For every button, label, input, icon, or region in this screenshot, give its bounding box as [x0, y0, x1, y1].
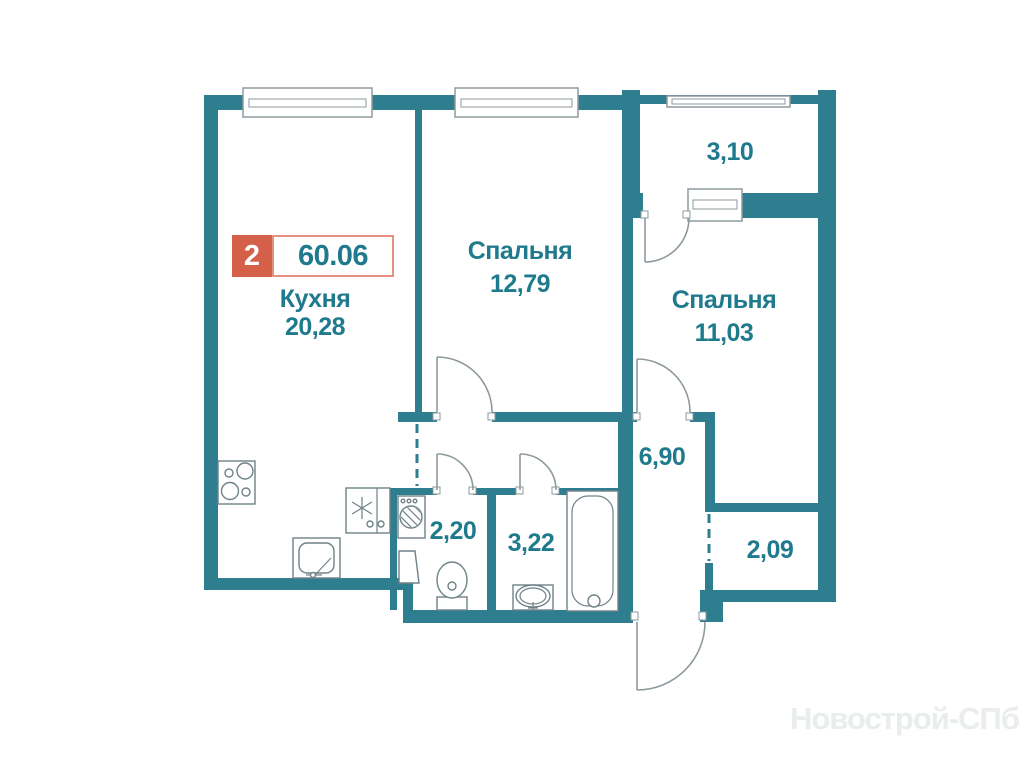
hallway-area-label: 6,90 [572, 445, 752, 470]
kitchen-label: Кухня [225, 287, 405, 312]
balcony-railing-icon [667, 96, 790, 107]
wall-closet-bottom [700, 590, 836, 602]
wall-kitchen-bottom [204, 578, 413, 590]
rooms-count-badge: 2 [232, 235, 272, 277]
kitchen-sink-icon [293, 538, 340, 578]
watermark: Новострой-СПб [790, 701, 1015, 737]
bedroom2-door-icon [633, 359, 693, 420]
floor-plan-page: 2 60.06 Кухня 20,28 Спальня 12,79 Спальн… [0, 0, 1024, 768]
wall-kitchen-bedroom1 [415, 95, 422, 412]
wall-bedroom1-bottom [492, 412, 637, 422]
area-badge: 2 60.06 [232, 235, 394, 277]
wall-right [818, 90, 836, 602]
wall-closet-left-lower [705, 563, 713, 600]
toilet-icon [437, 562, 467, 610]
balcony-area-label: 3,10 [640, 140, 820, 165]
kitchen-area-label: 20,28 [225, 315, 405, 340]
wall-left [204, 95, 218, 590]
bedroom1-door-icon [433, 357, 495, 420]
wall-balcony-bottom-right [740, 193, 818, 218]
wall-bath-bottom [403, 610, 633, 623]
wall-bath-left [390, 488, 397, 610]
stove-icon [218, 461, 255, 504]
corner-cabinet-icon [399, 551, 419, 583]
kitchen-window-icon [243, 88, 372, 117]
bedroom1-window-icon [455, 88, 578, 117]
wall-closet-top [705, 503, 836, 512]
bathroom-area-label: 3,22 [441, 531, 621, 556]
wall-bedroom-divider [622, 90, 633, 412]
wc-door-icon [433, 454, 476, 494]
bedroom1-area-label: 12,79 [430, 272, 610, 297]
wall-top-mid [372, 95, 455, 110]
bedroom2-label: Спальня [634, 288, 814, 313]
wall-bath-top-b [473, 488, 516, 495]
total-area-badge: 60.06 [272, 235, 394, 277]
washbasin-icon [513, 585, 553, 611]
floor-plan-canvas [0, 0, 1024, 768]
bathroom-door-icon [516, 454, 559, 494]
wall-bath-top-a [397, 488, 437, 495]
balcony-door-icon [641, 211, 690, 262]
bedroom1-label: Спальня [430, 239, 610, 264]
balcony-door-window-icon [688, 189, 742, 221]
entry-door-icon [631, 612, 706, 690]
wall-bath-right [618, 412, 633, 623]
wall-bedroom1-bottom-cap [398, 412, 437, 422]
bedroom2-area-label: 11,03 [634, 321, 814, 346]
wardrobe-area-label: 2,09 [680, 538, 860, 563]
